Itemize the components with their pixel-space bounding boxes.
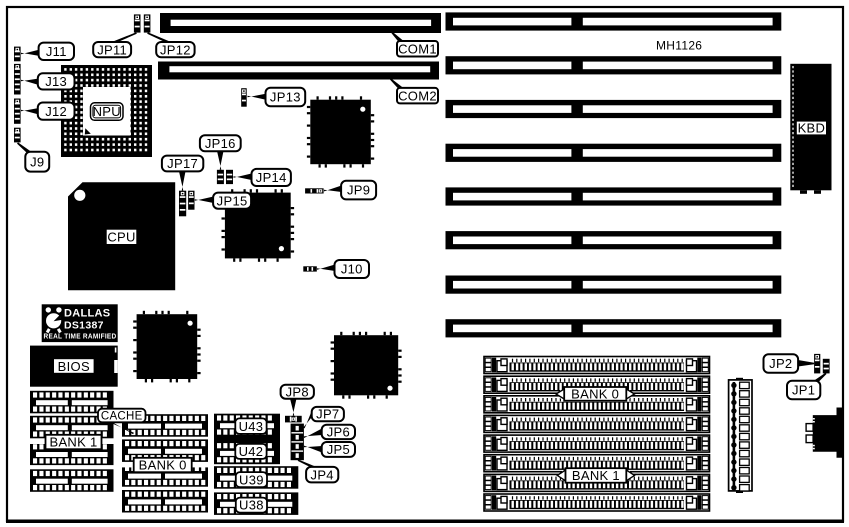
svg-text:JP14: JP14 — [256, 170, 287, 185]
svg-text:JP4: JP4 — [311, 467, 334, 482]
svg-text:J9: J9 — [30, 154, 44, 169]
svg-text:DALLAS: DALLAS — [64, 308, 110, 320]
svg-text:JP2: JP2 — [769, 356, 792, 371]
svg-text:CPU: CPU — [107, 230, 135, 245]
svg-text:U43: U43 — [239, 419, 264, 434]
svg-text:KBD: KBD — [798, 121, 826, 136]
svg-text:COM2: COM2 — [398, 88, 437, 103]
svg-text:JP9: JP9 — [347, 183, 370, 198]
svg-text:J12: J12 — [45, 104, 67, 119]
svg-text:BANK 1: BANK 1 — [572, 468, 620, 483]
svg-text:JP6: JP6 — [327, 425, 350, 440]
svg-text:J13: J13 — [45, 74, 67, 89]
svg-text:JP8: JP8 — [286, 384, 309, 399]
svg-text:CACHE: CACHE — [101, 411, 143, 423]
svg-text:NPU: NPU — [93, 104, 121, 119]
svg-text:JP15: JP15 — [217, 193, 248, 208]
svg-text:JP1: JP1 — [792, 383, 815, 398]
svg-text:JP16: JP16 — [205, 136, 236, 151]
svg-text:DS1387: DS1387 — [64, 320, 104, 332]
svg-text:JP5: JP5 — [327, 442, 350, 457]
svg-text:COM1: COM1 — [398, 41, 437, 56]
svg-text:BANK 0: BANK 0 — [139, 458, 187, 473]
svg-text:BANK 0: BANK 0 — [571, 386, 619, 401]
svg-text:J10: J10 — [341, 262, 363, 277]
svg-text:U38: U38 — [239, 498, 264, 513]
svg-text:JP12: JP12 — [160, 42, 191, 57]
svg-text:JP7: JP7 — [316, 407, 339, 422]
svg-text:BANK 1: BANK 1 — [49, 435, 97, 450]
svg-text:J11: J11 — [46, 44, 67, 59]
svg-text:MH1126: MH1126 — [656, 39, 702, 53]
svg-text:JP13: JP13 — [270, 90, 301, 105]
svg-text:JP11: JP11 — [97, 42, 127, 57]
svg-text:U39: U39 — [239, 472, 264, 487]
svg-text:BIOS: BIOS — [58, 359, 90, 374]
svg-text:JP17: JP17 — [167, 156, 198, 171]
svg-text:U42: U42 — [239, 444, 264, 459]
svg-text:REAL TIME RAMIFIED: REAL TIME RAMIFIED — [44, 334, 117, 341]
